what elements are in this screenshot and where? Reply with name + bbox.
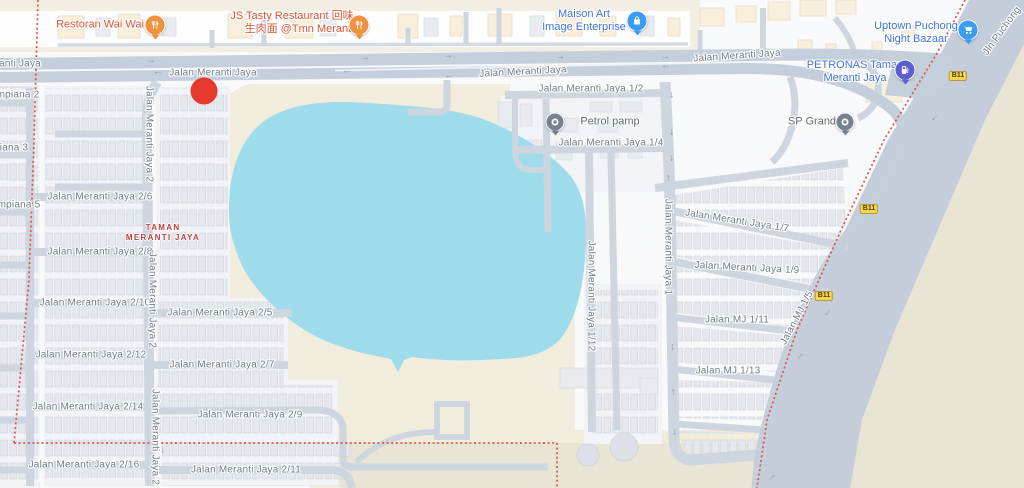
- street-label: mpiana 5: [0, 200, 40, 211]
- road-direction-arrow-icon: →: [667, 127, 677, 137]
- road-direction-arrow-icon: →: [147, 248, 157, 258]
- fork-knife-icon[interactable]: [349, 15, 370, 40]
- region-label: TAMAN MERANTI JAYA: [126, 223, 200, 243]
- street-label: Jalan Meranti Jaya: [169, 68, 257, 79]
- street-label: iana 3: [0, 143, 28, 154]
- poi-label-js-tasty-restaurant[interactable]: JS Tasty Restaurant 回味生肉面 @Tmn Meranti: [230, 10, 353, 36]
- road-direction-arrow-icon: →: [821, 306, 835, 320]
- location-marker[interactable]: [191, 78, 218, 105]
- poi-label-restoran-wai-wai[interactable]: Restoran Wai Wai: [56, 19, 144, 32]
- street-label: Jalan Meranti Jaya 2/10: [40, 298, 151, 309]
- street-label: Jalan Meranti Jaya 1/9: [694, 260, 799, 276]
- road-direction-arrow-icon: →: [765, 470, 779, 484]
- street-label: Jalan Meranti Jaya 1/7: [684, 207, 789, 234]
- road-direction-arrow-icon: →: [670, 427, 680, 437]
- route-badge: B11: [949, 71, 967, 81]
- street-label: Jalan Meranti Jaya 2: [147, 252, 158, 348]
- map[interactable]: TAMAN MERANTI JAYA anti JayaJalan Merant…: [0, 0, 1024, 488]
- route-badge: B11: [860, 204, 878, 214]
- street-label: Jalan Meranti Jaya 2: [150, 389, 161, 485]
- street-label: anti Jaya: [0, 59, 41, 70]
- poi-label-uptown-puchong-night-bazaar[interactable]: Uptown PuchongNight Bazaar: [874, 20, 958, 46]
- street-label: Jalan Meranti Jaya 2/8: [47, 247, 152, 258]
- street-label: Jalan Meranti Jaya 2/16: [29, 460, 140, 471]
- road-direction-arrow-icon: →: [360, 53, 370, 63]
- cart-icon[interactable]: [958, 20, 979, 45]
- region-label-line1: TAMAN: [126, 223, 200, 233]
- dot-icon[interactable]: [836, 113, 855, 136]
- poi-label-sp-grand[interactable]: SP Grand: [788, 116, 836, 129]
- fork-knife-icon[interactable]: [145, 15, 166, 40]
- street-label: Jalan Meranti Jaya 2: [144, 86, 155, 182]
- road-direction-arrow-icon: →: [555, 52, 565, 62]
- road-direction-arrow-icon: →: [667, 90, 677, 100]
- dot-icon[interactable]: [546, 113, 565, 136]
- road-direction-arrow-icon: →: [793, 349, 807, 363]
- street-label: Jalan MJ 1/11: [705, 315, 769, 326]
- street-label: Jalan Meranti Jaya 1: [663, 199, 674, 295]
- street-label: Jalan Meranti Jaya 2/14: [33, 402, 144, 413]
- road-direction-arrow-icon: →: [667, 153, 677, 163]
- poi-label-petronas-taman-meranti-jaya[interactable]: PETRONAS TamanMeranti Jaya: [807, 59, 903, 85]
- street-label: Jalan Meranti Jaya 1/2: [538, 84, 643, 95]
- road-direction-arrow-icon: →: [668, 387, 678, 397]
- road-direction-arrow-icon: →: [158, 445, 168, 455]
- poi-label-maison-art-image-enterprise[interactable]: Maison ArtImage Enterprise: [542, 8, 626, 34]
- street-label: Jalan Meranti Jaya 2/7: [169, 360, 274, 371]
- street-label: Jalan Meranti Jaya 2/11: [191, 465, 301, 476]
- street-label: Jalan Meranti Jaya: [693, 47, 781, 64]
- road-direction-arrow-icon: →: [443, 51, 453, 61]
- road-direction-arrow-icon: →: [668, 342, 678, 352]
- street-label: Jalan Meranti Jaya 2/6: [47, 192, 152, 203]
- street-label: Jalan Meranti Jaya 2/12: [36, 350, 147, 361]
- street-label: Jalan MJ 1/13: [696, 366, 761, 377]
- fuel-icon[interactable]: [895, 60, 916, 85]
- street-label: Jalan Meranti Jaya 2/9: [197, 410, 302, 421]
- road-direction-arrow-icon: →: [444, 72, 454, 82]
- road-direction-arrow-icon: →: [342, 67, 352, 77]
- road-direction-arrow-icon: →: [661, 62, 671, 72]
- bag-icon[interactable]: [627, 11, 648, 36]
- route-badge: B11: [815, 291, 833, 301]
- road-direction-arrow-icon: →: [146, 56, 156, 66]
- road-direction-arrow-icon: →: [663, 173, 673, 183]
- street-label: Jalan Meranti Jaya 1/12: [586, 241, 597, 352]
- poi-label-petrol-pamp[interactable]: Petrol pamp: [580, 116, 639, 129]
- street-label: Jln Puchong: [981, 5, 1024, 58]
- street-label: Jalan Meranti Jaya 2/5: [167, 308, 272, 319]
- road-direction-arrow-icon: →: [660, 52, 670, 62]
- region-label-line2: MERANTI JAYA: [126, 233, 200, 243]
- road-direction-arrow-icon: →: [153, 68, 163, 78]
- street-label: Jalan Meranti Jaya: [479, 64, 567, 80]
- street-label: mpiana 2: [0, 90, 39, 101]
- street-label: Jalan Meranti Jaya 1/4: [558, 138, 663, 149]
- road-direction-arrow-icon: →: [928, 111, 942, 125]
- street-label: Jalan MJ 1/5: [778, 289, 815, 346]
